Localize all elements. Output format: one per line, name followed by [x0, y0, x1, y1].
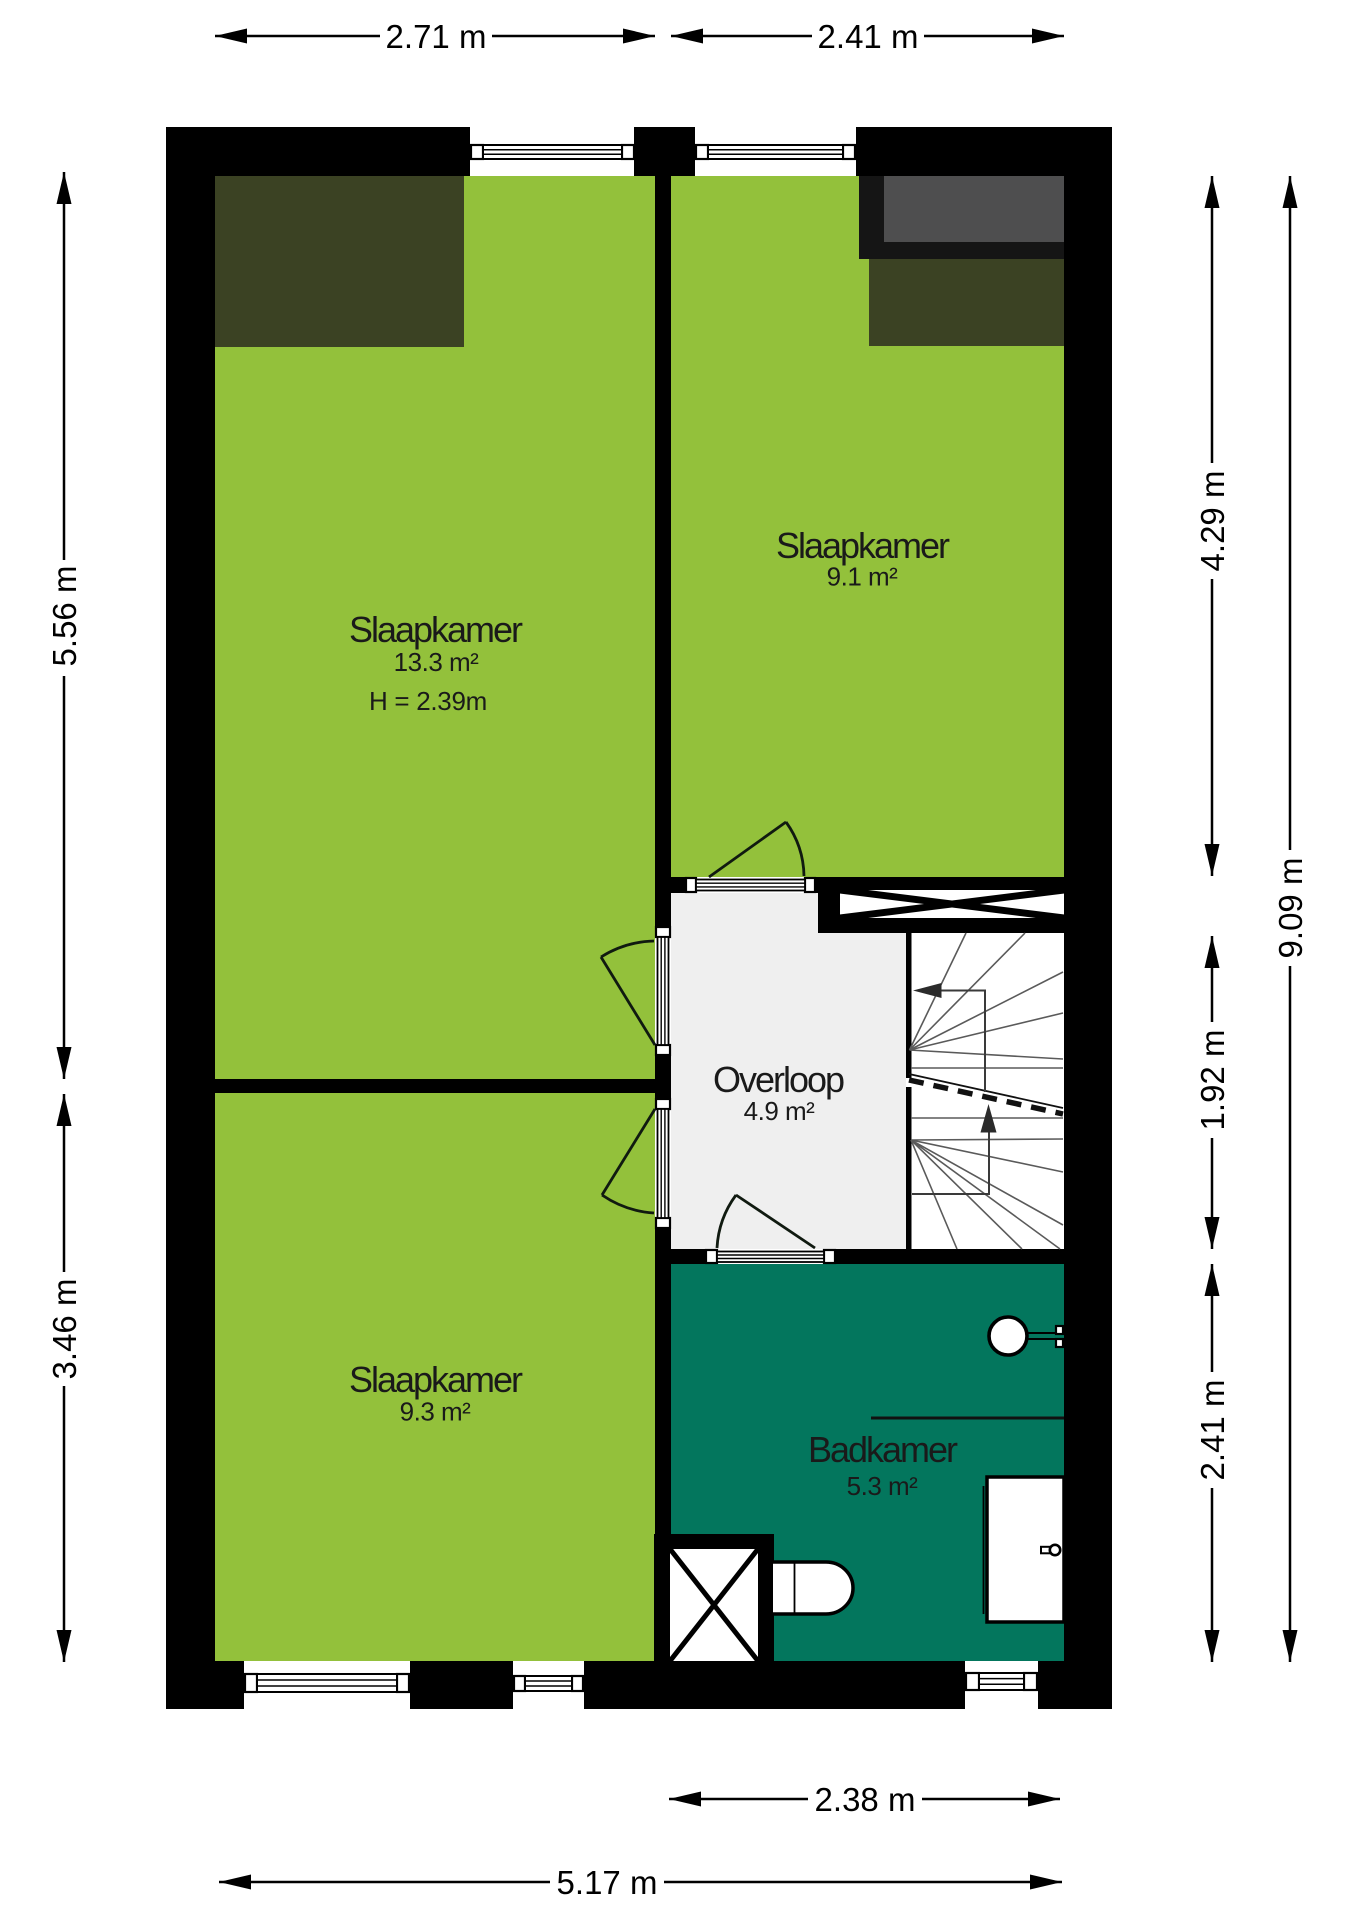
svg-text:2.41 m: 2.41 m [818, 18, 919, 55]
svg-text:Slaapkamer: Slaapkamer [776, 525, 950, 566]
svg-text:13.3 m²: 13.3 m² [394, 647, 479, 677]
svg-text:9.1 m²: 9.1 m² [827, 562, 899, 592]
svg-text:3.46 m: 3.46 m [46, 1279, 83, 1380]
svg-text:Overloop: Overloop [713, 1059, 844, 1100]
svg-text:2.71 m: 2.71 m [386, 18, 487, 55]
svg-text:5.56 m: 5.56 m [46, 566, 83, 667]
svg-text:5.17 m: 5.17 m [557, 1864, 658, 1901]
svg-text:1.92 m: 1.92 m [1194, 1030, 1231, 1131]
svg-text:4.29 m: 4.29 m [1194, 471, 1231, 572]
svg-text:H = 2.39m: H = 2.39m [369, 686, 487, 716]
svg-text:Badkamer: Badkamer [808, 1429, 958, 1470]
svg-text:Slaapkamer: Slaapkamer [349, 1359, 523, 1400]
svg-text:5.3 m²: 5.3 m² [847, 1471, 919, 1501]
svg-text:9.09 m: 9.09 m [1272, 858, 1309, 959]
svg-text:Slaapkamer: Slaapkamer [349, 609, 523, 650]
svg-text:2.38 m: 2.38 m [815, 1781, 916, 1818]
svg-text:4.9 m²: 4.9 m² [744, 1096, 816, 1126]
svg-text:9.3 m²: 9.3 m² [400, 1397, 472, 1427]
svg-text:2.41 m: 2.41 m [1194, 1380, 1231, 1481]
